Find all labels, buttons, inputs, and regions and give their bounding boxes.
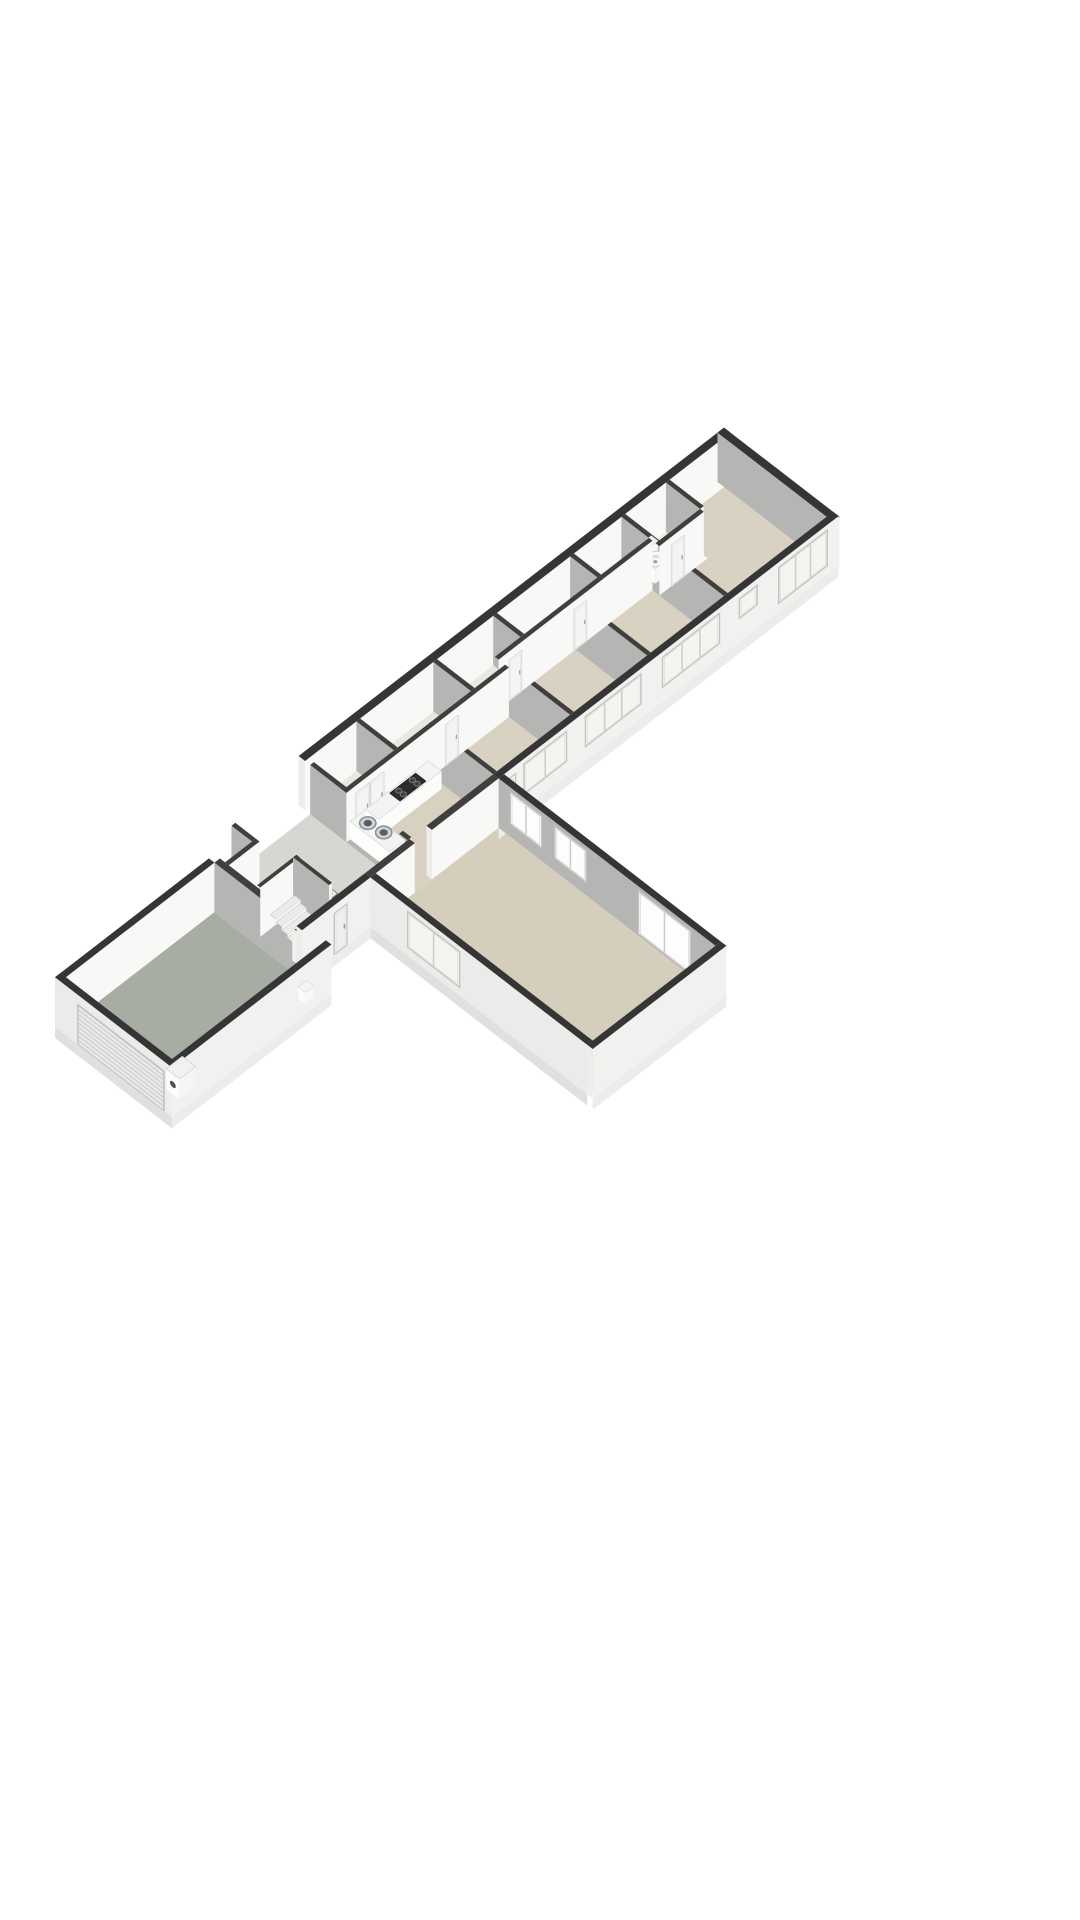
kitchen-sink-bowl-2: [376, 826, 392, 839]
floorplan-svg: [0, 0, 1080, 1920]
floorplan-viewport: [0, 0, 1080, 1920]
kitchen-sink-bowl-1: [360, 817, 376, 830]
